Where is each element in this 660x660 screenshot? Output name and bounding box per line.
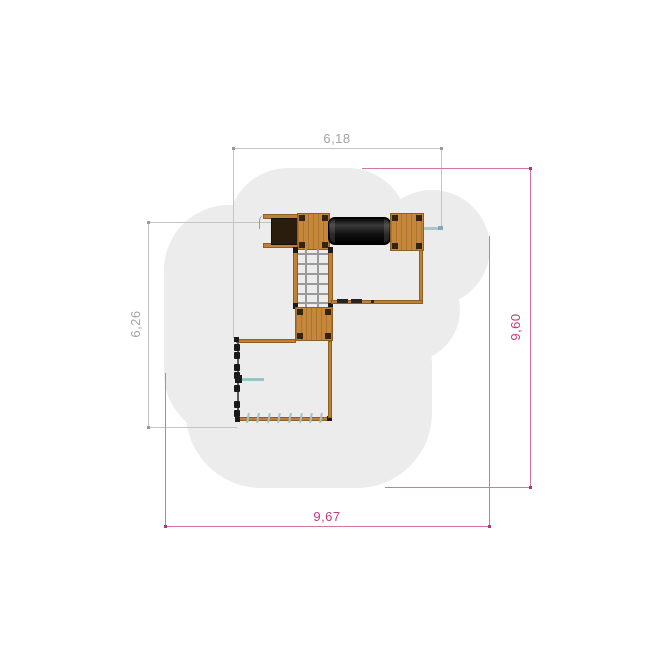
platform-top-right — [390, 213, 424, 251]
corner-post — [297, 333, 303, 339]
climbing-grip — [234, 364, 240, 371]
corner-post — [416, 243, 422, 249]
climbing-grip — [234, 385, 240, 392]
dimension-endpoint — [147, 426, 150, 429]
dimension-line-right — [530, 168, 531, 487]
dimension-line-bottom — [165, 526, 489, 527]
net-rung — [297, 283, 329, 285]
net-line — [305, 249, 307, 307]
dimension-endpoint — [440, 147, 443, 150]
balance-beam — [237, 417, 332, 421]
corner-post — [299, 215, 305, 221]
dimension-endpoint — [147, 221, 150, 224]
corner-post — [416, 215, 422, 221]
net-rail — [293, 247, 298, 309]
frame-top-beam — [236, 339, 296, 343]
platform-top-left — [297, 213, 330, 250]
hand-bar-grip — [235, 375, 242, 383]
climbing-grip — [234, 352, 240, 359]
net-rung — [297, 302, 329, 304]
dimension-endpoint — [164, 525, 167, 528]
climbing-net — [293, 247, 333, 309]
dimension-line-top — [233, 148, 441, 149]
dimension-label-left: 6,26 — [129, 294, 143, 354]
beam-fitting — [371, 300, 374, 303]
corner-post — [392, 215, 398, 221]
dimension-label-bottom: 9,67 — [165, 510, 489, 524]
corner-post — [325, 309, 331, 315]
corner-post — [325, 333, 331, 339]
net-rung — [297, 263, 329, 265]
slide-end-curve — [259, 215, 266, 229]
corner-post — [297, 309, 303, 315]
plan-drawing: 6,18 6,26 9,60 9,67 — [0, 0, 660, 660]
extension-line — [441, 148, 442, 230]
net-rung — [297, 253, 329, 255]
frame-corner — [235, 417, 240, 422]
dimension-endpoint — [529, 486, 532, 489]
support-post — [419, 250, 423, 303]
corner-post — [392, 243, 398, 249]
climbing-grip — [234, 410, 240, 417]
net-rung — [297, 293, 329, 295]
net-line — [317, 249, 319, 307]
net-rung — [297, 273, 329, 275]
steel-pole-tip — [438, 226, 443, 230]
beam-fitting — [351, 299, 362, 303]
extension-line — [385, 487, 530, 488]
extension-line — [362, 168, 530, 169]
hand-bar — [241, 378, 264, 381]
extension-line — [489, 236, 490, 526]
frame-corner — [234, 337, 239, 342]
extension-line — [165, 373, 166, 526]
dimension-label-top: 6,18 — [233, 132, 441, 146]
crawl-tunnel — [328, 217, 391, 245]
dimension-endpoint — [529, 167, 532, 170]
dimension-label-right: 9,60 — [509, 297, 523, 357]
extension-line — [148, 427, 237, 428]
tunnel-rim — [330, 219, 335, 243]
dimension-endpoint — [232, 147, 235, 150]
steel-pole — [424, 227, 438, 230]
beam-fitting — [337, 299, 348, 303]
rail-cap — [328, 247, 333, 253]
tunnel-rim — [384, 219, 389, 243]
dimension-line-left — [148, 222, 149, 427]
climbing-grip — [234, 344, 240, 351]
platform-lower — [295, 307, 333, 341]
extension-line — [233, 148, 234, 338]
rail-cap — [293, 247, 298, 253]
corner-post — [322, 215, 328, 221]
frame-right-beam — [328, 341, 332, 418]
dimension-endpoint — [488, 525, 491, 528]
climbing-grip — [234, 401, 240, 408]
